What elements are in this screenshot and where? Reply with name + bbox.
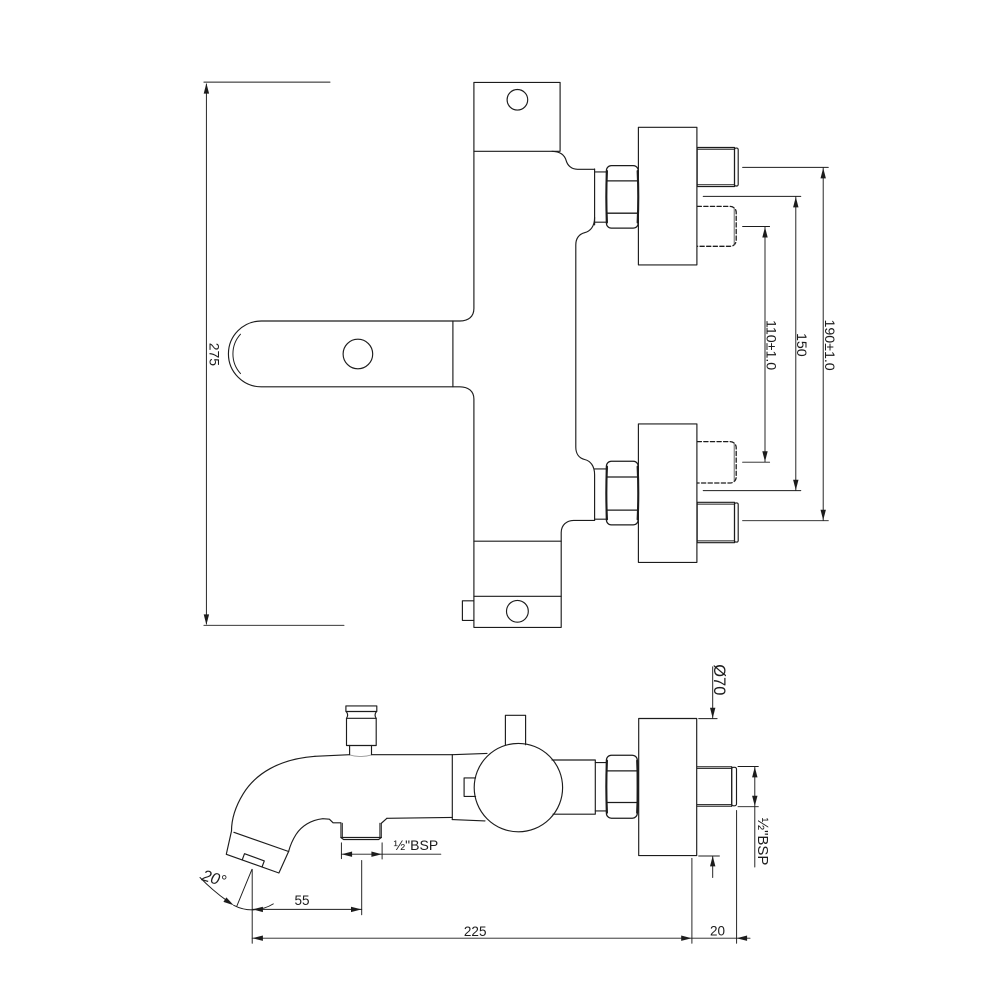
svg-text:55: 55 bbox=[294, 893, 309, 908]
svg-text:225: 225 bbox=[464, 924, 487, 939]
svg-text:½"BSP: ½"BSP bbox=[394, 837, 439, 853]
svg-text:½"BSP: ½"BSP bbox=[754, 818, 771, 866]
svg-text:190±1.0: 190±1.0 bbox=[821, 320, 837, 371]
svg-text:150: 150 bbox=[793, 333, 809, 357]
svg-text:Ø70: Ø70 bbox=[710, 664, 728, 695]
svg-text:110±1.0: 110±1.0 bbox=[763, 320, 779, 370]
svg-text:275: 275 bbox=[206, 343, 222, 367]
svg-text:20: 20 bbox=[710, 924, 725, 939]
